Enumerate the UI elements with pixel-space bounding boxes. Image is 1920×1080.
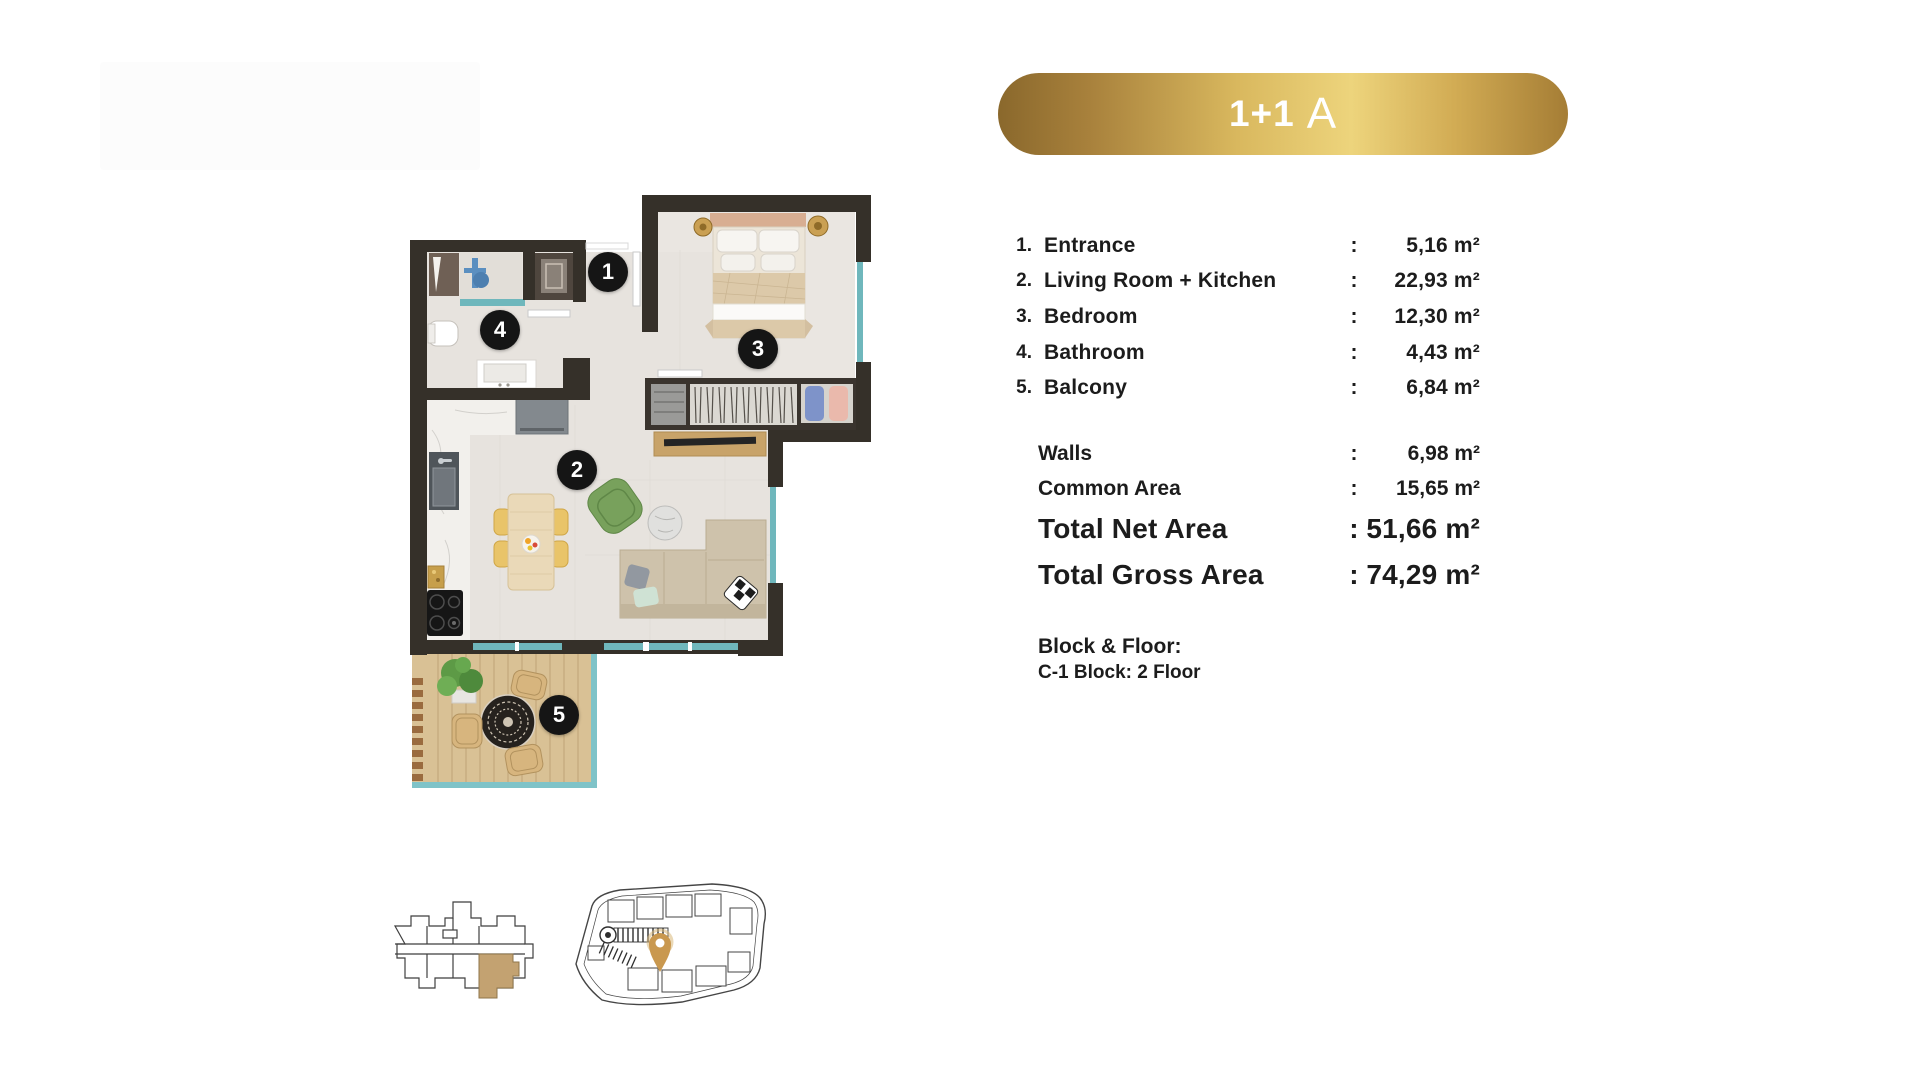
tray: [428, 566, 444, 588]
balcony-railing: [412, 678, 423, 781]
summary-value: 6,98 m²: [1362, 442, 1480, 466]
room-row: 4. Bathroom : 4,43 m²: [1006, 335, 1480, 371]
room-number: 5.: [1006, 377, 1032, 399]
fridge: [516, 398, 568, 434]
bedroom-door-leaf: [658, 370, 702, 377]
block-floor-info: Block & Floor: C-1 Block: 2 Floor: [1038, 633, 1458, 685]
colon-separator: :: [1346, 376, 1362, 400]
unit-type-banner: 1+1 A: [998, 73, 1568, 155]
colon-separator: :: [1346, 442, 1362, 466]
marker-number: 5: [553, 702, 565, 728]
room-area-value: 12,30 m²: [1362, 305, 1480, 329]
summary-row-walls: Walls : 6,98 m²: [1006, 436, 1480, 471]
hall-closet: [535, 253, 573, 300]
colon-separator: :: [1346, 477, 1362, 501]
summary-row-common-area: Common Area : 15,65 m²: [1006, 471, 1480, 506]
marker-balcony: 5: [539, 695, 579, 735]
summary-label: Common Area: [1006, 477, 1346, 501]
colon-separator: :: [1346, 269, 1362, 293]
bathroom-door-leaf: [528, 310, 570, 317]
logo-watermark: [100, 62, 480, 170]
balcony-glass: [591, 652, 597, 788]
robe-pink: [829, 386, 848, 421]
bed: [705, 213, 813, 338]
marker-number: 4: [494, 317, 506, 343]
colon-separator: :: [1346, 559, 1362, 591]
room-area-value: 6,84 m²: [1362, 376, 1480, 400]
site-plan: [562, 876, 776, 1010]
room-area-list: 1. Entrance : 5,16 m² 2. Living Room + K…: [1006, 228, 1480, 406]
entrance-threshold: [586, 243, 628, 249]
room-number: 3.: [1006, 306, 1032, 328]
entrance-door-leaf: [633, 252, 640, 306]
room-area-value: 4,43 m²: [1362, 341, 1480, 365]
marker-bedroom: 3: [738, 329, 778, 369]
toilet: [428, 321, 458, 346]
bathroom-vanity: [477, 360, 536, 388]
unit-type-main: 1+1: [1229, 93, 1295, 135]
tv-console: [654, 432, 766, 456]
room-number: 1.: [1006, 235, 1032, 257]
unit-type-variant: A: [1307, 89, 1337, 139]
marker-bathroom: 4: [480, 310, 520, 350]
robe-blue: [805, 386, 824, 421]
balcony-table: [481, 695, 535, 749]
kitchen-sink: [429, 452, 459, 510]
marker-number: 1: [602, 259, 614, 285]
summary-row-total-net: Total Net Area : 51,66 m²: [1006, 506, 1480, 552]
wardrobe: [645, 378, 858, 430]
marker-living-room: 2: [557, 450, 597, 490]
room-row: 3. Bedroom : 12,30 m²: [1006, 299, 1480, 335]
summary-label: Total Net Area: [1006, 513, 1346, 545]
cooktop: [427, 590, 463, 636]
colon-separator: :: [1346, 513, 1362, 545]
colon-separator: :: [1346, 234, 1362, 258]
marker-entrance: 1: [588, 252, 628, 292]
block-floor-value: C-1 Block: 2 Floor: [1038, 661, 1458, 685]
key-plan: [383, 886, 535, 1004]
marker-number: 3: [752, 336, 764, 362]
room-number: 4.: [1006, 342, 1032, 364]
room-area-value: 22,93 m²: [1362, 269, 1480, 293]
summary-value: 74,29 m²: [1362, 559, 1480, 591]
floor-plan: [395, 185, 887, 810]
summary-value: 51,66 m²: [1362, 513, 1480, 545]
room-label: Bathroom: [1032, 341, 1346, 365]
highlighted-unit: [479, 954, 519, 998]
shower-glass: [460, 299, 525, 306]
room-row: 5. Balcony : 6,84 m²: [1006, 370, 1480, 406]
summary-label: Walls: [1006, 442, 1346, 466]
room-label: Living Room + Kitchen: [1032, 269, 1346, 293]
room-label: Balcony: [1032, 376, 1346, 400]
shower: [460, 253, 525, 306]
room-label: Entrance: [1032, 234, 1346, 258]
room-row: 2. Living Room + Kitchen : 22,93 m²: [1006, 264, 1480, 300]
room-row: 1. Entrance : 5,16 m²: [1006, 228, 1480, 264]
summary-value: 15,65 m²: [1362, 477, 1480, 501]
summary-label: Total Gross Area: [1006, 559, 1346, 591]
room-label: Bedroom: [1032, 305, 1346, 329]
colon-separator: :: [1346, 341, 1362, 365]
fruit-bowl: [522, 535, 540, 553]
summary-row-total-gross: Total Gross Area : 74,29 m²: [1006, 552, 1480, 598]
area-summary: Walls : 6,98 m² Common Area : 15,65 m² T…: [1006, 436, 1480, 598]
room-area-value: 5,16 m²: [1362, 234, 1480, 258]
room-number: 2.: [1006, 270, 1032, 292]
block-floor-title: Block & Floor:: [1038, 633, 1458, 661]
balcony-chair: [452, 714, 482, 748]
coffee-table: [648, 506, 682, 540]
balcony-chair: [504, 743, 544, 777]
colon-separator: :: [1346, 305, 1362, 329]
marker-number: 2: [571, 457, 583, 483]
balcony-glass: [412, 782, 597, 788]
